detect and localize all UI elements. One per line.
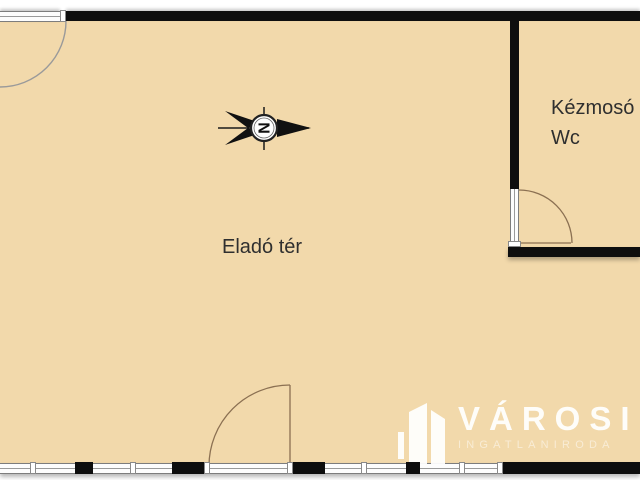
window-mullion-tick — [497, 462, 503, 474]
bottom-wall-segment — [172, 462, 206, 474]
room-label-wc: Kézmosó Wc — [551, 93, 634, 153]
wc-door-band — [510, 189, 519, 243]
window-mullion-tick — [130, 462, 136, 474]
bottom-wall-segment — [293, 462, 325, 474]
top-wall — [66, 11, 640, 21]
door-jamb-tick — [204, 462, 210, 474]
bottom-wall-segment — [503, 462, 640, 474]
varosi-logo-text: VÁROSI INGATLANIRODA — [458, 402, 639, 451]
window-mullion-tick — [30, 462, 36, 474]
room-label-wc-line1: Kézmosó — [551, 93, 634, 123]
window-mullion-tick — [361, 462, 367, 474]
varosi-logo-subtitle: INGATLANIRODA — [458, 439, 639, 451]
wc-bottom-wall — [508, 247, 640, 257]
floorplan-canvas: N Eladó tér Kézmosó Wc VÁROSI INGATLANIR… — [0, 0, 640, 480]
wc-partition-wall — [510, 21, 519, 189]
room-label-wc-line2: Wc — [551, 123, 634, 153]
varosi-logo-name: VÁROSI — [458, 402, 639, 436]
room-label-main: Eladó tér — [222, 236, 302, 259]
bottom-wall-segment — [75, 462, 93, 474]
varosi-logo: VÁROSI INGATLANIRODA — [396, 396, 640, 468]
window-mullion-tick — [459, 462, 465, 474]
logo-building-bar — [398, 432, 404, 459]
logo-building-right — [431, 410, 445, 464]
door-jamb-tick — [60, 10, 66, 22]
bottom-wall-segment — [406, 462, 420, 474]
wc-door-jamb-tick — [508, 241, 521, 247]
varosi-logo-icon — [396, 398, 448, 466]
door-jamb-tick — [287, 462, 293, 474]
top-left-door-band — [0, 11, 60, 22]
logo-building-tall — [409, 403, 427, 464]
